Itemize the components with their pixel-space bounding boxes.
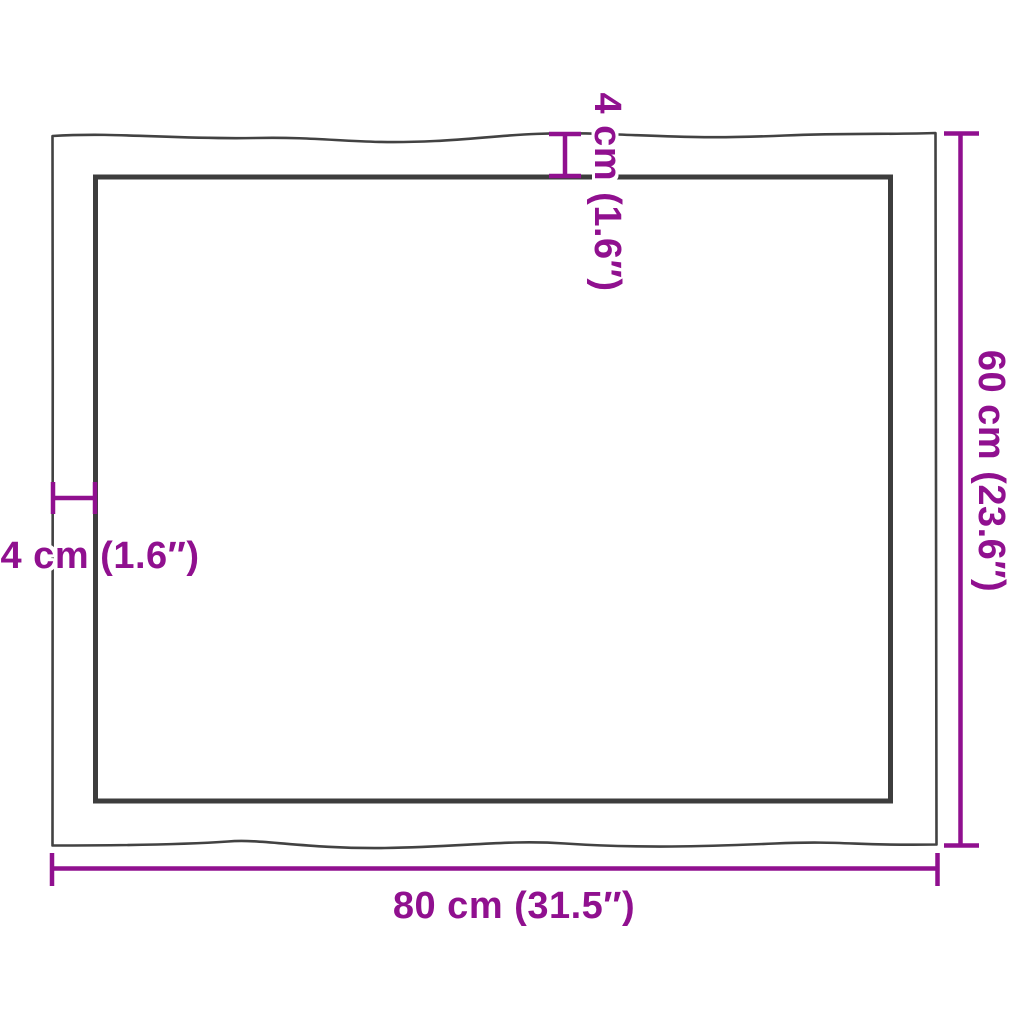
top-thickness-label: 4 cm (1.6″) [588, 92, 626, 291]
tabletop-diagram-svg [0, 0, 1024, 1024]
tabletop-inner-edge [96, 177, 891, 801]
tabletop-dimension-diagram: 4 cm (1.6″) 4 cm (1.6″) 60 cm (23.6″) 80… [0, 0, 1024, 1024]
height-label: 60 cm (23.6″) [972, 350, 1010, 592]
left-thickness-label: 4 cm (1.6″) [0, 537, 199, 575]
width-label: 80 cm (31.5″) [393, 887, 635, 925]
width-dimension [52, 853, 938, 886]
